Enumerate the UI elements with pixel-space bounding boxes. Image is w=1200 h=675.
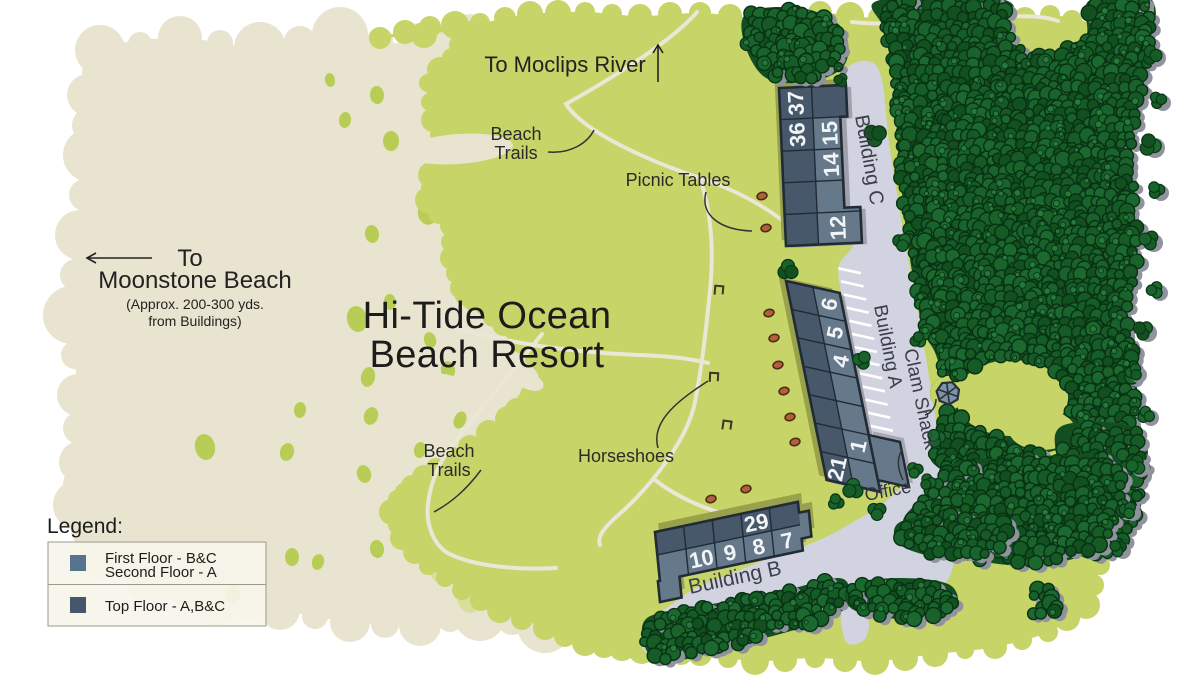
svg-text:(Approx. 200-300 yds.: (Approx. 200-300 yds.: [126, 296, 264, 312]
svg-text:from Buildings): from Buildings): [148, 313, 241, 329]
svg-text:Second Floor - A: Second Floor - A: [105, 564, 217, 581]
svg-text:Top Floor - A,B&C: Top Floor - A,B&C: [105, 598, 225, 615]
svg-text:Beach: Beach: [490, 124, 541, 144]
svg-text:Picnic Tables: Picnic Tables: [626, 170, 731, 190]
svg-text:10: 10: [687, 544, 716, 574]
svg-text:Moonstone Beach: Moonstone Beach: [98, 267, 291, 294]
svg-text:Legend:: Legend:: [47, 515, 123, 538]
svg-text:29: 29: [742, 508, 771, 538]
svg-text:12: 12: [825, 215, 851, 241]
svg-text:15: 15: [817, 120, 843, 146]
svg-text:Hi-Tide Ocean: Hi-Tide Ocean: [363, 295, 612, 337]
svg-text:Trails: Trails: [427, 460, 470, 480]
svg-text:Beach: Beach: [423, 441, 474, 461]
svg-text:14: 14: [818, 151, 844, 177]
svg-text:Horseshoes: Horseshoes: [578, 446, 674, 466]
svg-text:37: 37: [783, 90, 809, 116]
svg-text:Trails: Trails: [494, 143, 537, 163]
svg-text:Beach Resort: Beach Resort: [369, 334, 604, 376]
svg-text:36: 36: [784, 122, 810, 148]
svg-text:To Moclips River: To Moclips River: [484, 52, 645, 77]
